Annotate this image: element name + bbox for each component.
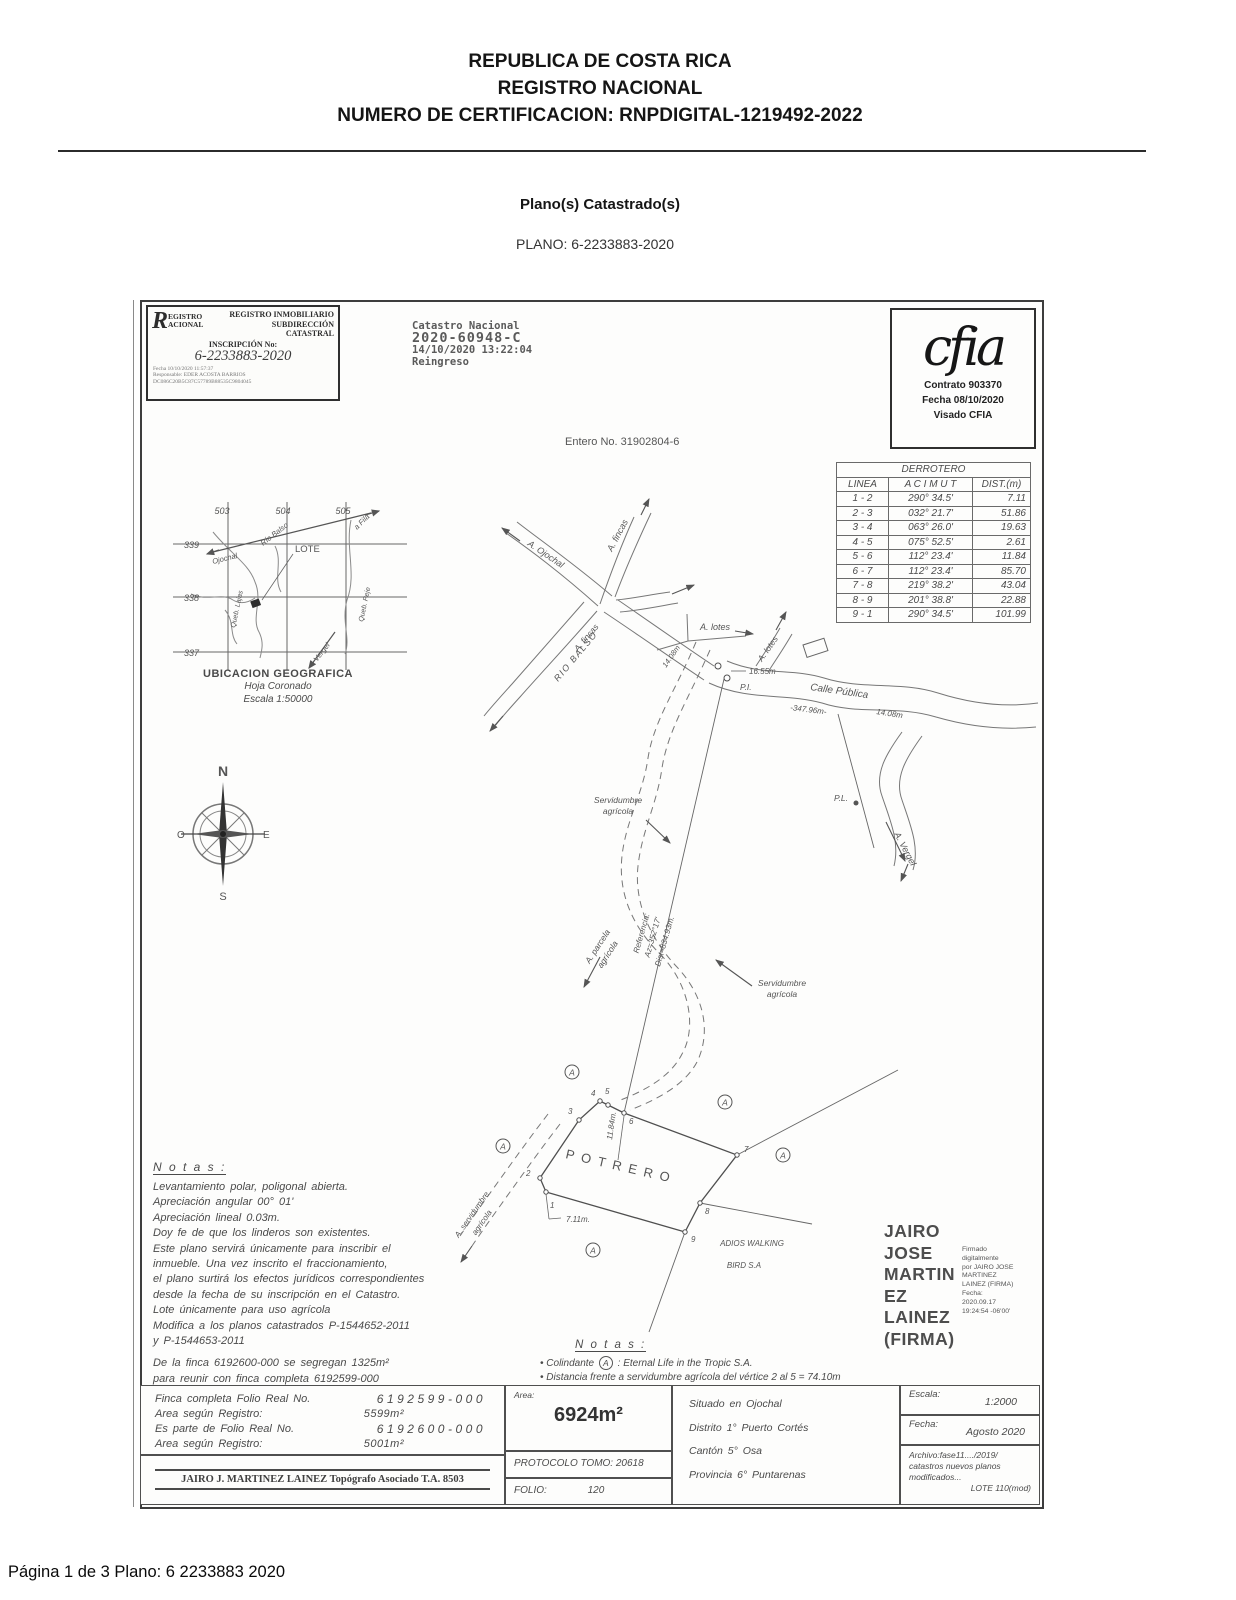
distancia-note: • Distancia frente a servidumbre agrícol…: [540, 1371, 1010, 1385]
surveyor-box: JAIRO J. MARTINEZ LAINEZ Topógrafo Asoci…: [140, 1455, 505, 1505]
sig-detail: Firmado: [962, 1246, 1036, 1255]
folio-box: FOLIO: 120: [505, 1478, 672, 1505]
cell: 2 - 3: [837, 506, 889, 521]
cell: 219° 38.2': [889, 579, 973, 594]
sig-line: MARTIN: [884, 1264, 955, 1286]
archivo-line: catastros nuevos planos: [909, 1461, 1035, 1472]
cell: 112° 23.4': [889, 550, 973, 565]
cfia-contrato: Contrato 903370: [892, 378, 1034, 393]
derrotero-col-linea: LINEA: [837, 477, 889, 492]
colindante-notes: N o t a s : • Colindante A : Eternal Lif…: [540, 1335, 1010, 1385]
cell: 4 - 5: [837, 535, 889, 550]
note-line: Doy fe de que los linderos son existente…: [153, 1226, 493, 1241]
note-line: desde la fecha de su inscripción en el C…: [153, 1288, 493, 1303]
cell: 7.11: [973, 492, 1031, 507]
note-line: Lote únicamente para uso agrícola: [153, 1303, 493, 1318]
cell: 2.61: [973, 535, 1031, 550]
cell: 7 - 8: [837, 579, 889, 594]
sig-detail: digitalmente: [962, 1255, 1036, 1264]
sig-detail: 19:24:54 -06'00': [962, 1308, 1036, 1317]
escala-label: Escala 1:50000: [178, 693, 378, 706]
cfia-logo: cfia: [892, 318, 1034, 378]
cfia-stamp: cfia Contrato 903370 Fecha 08/10/2020 Vi…: [890, 308, 1036, 449]
derrotero-row: 1 - 2290° 34.5'7.11: [837, 492, 1031, 507]
header-country: REPUBLICA DE COSTA RICA: [0, 48, 1200, 75]
archivo-line: Archivo:fase11..../2019/: [909, 1450, 1035, 1461]
folio-label: FOLIO:: [514, 1485, 547, 1496]
header-divider: [58, 150, 1146, 152]
cfia-visado: Visado CFIA: [892, 408, 1034, 423]
area-registro2-value: 5001m²: [364, 1437, 404, 1452]
note-line: y P-1544653-2011: [153, 1334, 493, 1349]
note-line: De la finca 6192600-000 se segregan 1325…: [153, 1356, 493, 1371]
folio-value: 120: [588, 1485, 605, 1496]
escala-value: 1:2000: [985, 1396, 1017, 1414]
sig-detail: Fecha:: [962, 1290, 1036, 1299]
colindante-a-icon: A: [599, 1356, 613, 1370]
hoja-label: Hoja Coronado: [178, 680, 378, 693]
derrotero-row: 9 - 1290° 34.5'101.99: [837, 608, 1031, 623]
section-title: Plano(s) Catastrado(s): [0, 196, 1200, 213]
derrotero-row: 4 - 5075° 52.5'2.61: [837, 535, 1031, 550]
cell: 290° 34.5': [889, 608, 973, 623]
stamp-code: DC086C20B5C87C57789B88535C9804045: [153, 379, 338, 386]
colindante-pre: • Colindante: [540, 1358, 594, 1369]
escala-box: Escala: 1:2000: [900, 1385, 1040, 1415]
derrotero-row: 2 - 3032° 21.7'51.86: [837, 506, 1031, 521]
provincia-line: Provincia 6° Puntarenas: [689, 1469, 899, 1481]
derrotero-row: 3 - 4063° 26.0'19.63: [837, 521, 1031, 536]
note-line: Este plano servirá únicamente para inscr…: [153, 1242, 493, 1257]
logo-r: R: [152, 310, 168, 332]
location-map-caption: UBICACION GEOGRAFICA Hoja Coronado Escal…: [178, 668, 378, 706]
note-line: Apreciación lineal 0.03m.: [153, 1211, 493, 1226]
archivo-lote-line: LOTE 110(mod): [909, 1483, 1035, 1494]
derrotero-col-dist: DIST.(m): [973, 477, 1031, 492]
fecha-label: Fecha:: [901, 1416, 938, 1444]
area-box: Area: 6924m²: [505, 1385, 672, 1451]
inscripcion-value: 6-2233883-2020: [148, 349, 338, 364]
entero-number: Entero No. 31902804-6: [565, 436, 679, 448]
fecha-value: Agosto 2020: [966, 1426, 1025, 1444]
notes-center-title: N o t a s :: [575, 1339, 646, 1352]
note-line: Apreciación angular 00° 01': [153, 1195, 493, 1210]
area-value: 6924m²: [506, 1404, 671, 1427]
cell: 51.86: [973, 506, 1031, 521]
cell: 19.63: [973, 521, 1031, 536]
area-label: Area:: [506, 1386, 671, 1400]
notes-block: N o t a s : Levantamiento polar, poligon…: [153, 1158, 493, 1387]
cell: 85.70: [973, 564, 1031, 579]
cell: 032° 21.7': [889, 506, 973, 521]
certification-header: REPUBLICA DE COSTA RICA REGISTRO NACIONA…: [0, 48, 1200, 129]
sig-line: JAIRO: [884, 1221, 955, 1243]
cell: 43.04: [973, 579, 1031, 594]
stamp-title1: REGISTRO INMOBILIARIO: [229, 310, 334, 320]
stamp-title3: CATASTRAL: [229, 329, 334, 339]
archivo-box: Archivo:fase11..../2019/ catastros nuevo…: [900, 1445, 1040, 1505]
derrotero-col-acimut: A C I M U T: [889, 477, 973, 492]
catastro-status: Reingreso: [412, 356, 532, 368]
archivo-line: modificados...: [909, 1472, 1035, 1483]
sig-line: LAINEZ: [884, 1307, 955, 1329]
note-line: el plano surtirá los efectos jurídicos c…: [153, 1272, 493, 1287]
cell: 290° 34.5': [889, 492, 973, 507]
note-line: Modifica a los planos catastrados P-1544…: [153, 1319, 493, 1334]
note-line: inmueble. Una vez inscrito el fraccionam…: [153, 1257, 493, 1272]
plano-number: PLANO: 6-2233883-2020: [0, 236, 1190, 252]
canton-line: Cantón 5° Osa: [689, 1445, 899, 1457]
colindante-note: • Colindante A : Eternal Life in the Tro…: [540, 1356, 1010, 1371]
sheet-outer-line: [133, 300, 134, 1507]
catastro-datetime: 14/10/2020 13:22:04: [412, 344, 532, 356]
finca-value: 6192599-000: [377, 1392, 486, 1407]
registro-nacional-logo: R EGISTRO ACIONAL: [152, 310, 203, 339]
page-footer: Página 1 de 3 Plano: 6 2233883 2020: [8, 1563, 285, 1582]
cell: 8 - 9: [837, 593, 889, 608]
sig-line: JOSE: [884, 1243, 955, 1265]
surveyor-name: JAIRO J. MARTINEZ LAINEZ Topógrafo Asoci…: [155, 1469, 490, 1490]
cell: 5 - 6: [837, 550, 889, 565]
sig-detail: LAINEZ (FIRMA): [962, 1281, 1036, 1290]
note-line: Levantamiento polar, poligonal abierta.: [153, 1180, 493, 1195]
cell: 22.88: [973, 593, 1031, 608]
cell: 6 - 7: [837, 564, 889, 579]
derrotero-title: DERROTERO: [837, 463, 1031, 478]
location-box: Situado en Ojochal Distrito 1° Puerto Co…: [672, 1385, 900, 1505]
colindante-post: : Eternal Life in the Tropic S.A.: [618, 1358, 753, 1369]
document-page: REPUBLICA DE COSTA RICA REGISTRO NACIONA…: [0, 0, 1236, 1600]
area-registro-value: 5599m²: [364, 1407, 404, 1422]
ubicacion-title: UBICACION GEOGRAFICA: [178, 668, 378, 680]
cell: 101.99: [973, 608, 1031, 623]
cell: 075° 52.5': [889, 535, 973, 550]
folio-parte-value: 6192600-000: [377, 1422, 486, 1437]
notes-title: N o t a s :: [153, 1160, 226, 1175]
registry-stamp: R EGISTRO ACIONAL REGISTRO INMOBILIARIO …: [146, 305, 340, 401]
cfia-fecha: Fecha 08/10/2020: [892, 393, 1034, 408]
catastro-number: 2020-60948-C: [412, 332, 532, 344]
situado-line: Situado en Ojochal: [689, 1398, 899, 1410]
cell: 3 - 4: [837, 521, 889, 536]
fecha-box: Fecha: Agosto 2020: [900, 1415, 1040, 1445]
sig-line: EZ: [884, 1286, 955, 1308]
finca-info-box: Finca completa Folio Real No.6192599-000…: [140, 1385, 505, 1455]
cell: 9 - 1: [837, 608, 889, 623]
folio-parte-label: Es parte de Folio Real No.: [155, 1422, 294, 1437]
cell: 1 - 2: [837, 492, 889, 507]
cell: 11.84: [973, 550, 1031, 565]
header-cert-number: NUMERO DE CERTIFICACION: RNPDIGITAL-1219…: [0, 102, 1200, 129]
finca-label: Finca completa Folio Real No.: [155, 1392, 310, 1407]
logo-line2: ACIONAL: [168, 321, 203, 329]
cell: 201° 38.8': [889, 593, 973, 608]
distrito-line: Distrito 1° Puerto Cortés: [689, 1422, 899, 1434]
escala-label: Escala:: [901, 1386, 940, 1414]
stamp-title2: SUBDIRECCIÓN: [229, 320, 334, 330]
cell: 112° 23.4': [889, 564, 973, 579]
derrotero-row: 7 - 8219° 38.2'43.04: [837, 579, 1031, 594]
area-registro-label: Area según Registro:: [155, 1407, 262, 1422]
derrotero-row: 6 - 7112° 23.4'85.70: [837, 564, 1031, 579]
sig-detail: 2020.09.17: [962, 1299, 1036, 1308]
digital-signature-details: Firmado digitalmente por JAIRO JOSE MART…: [962, 1246, 1036, 1316]
protocolo-box: PROTOCOLO TOMO: 20618: [505, 1451, 672, 1478]
sig-detail: MARTINEZ: [962, 1272, 1036, 1281]
sig-detail: por JAIRO JOSE: [962, 1264, 1036, 1273]
header-registry: REGISTRO NACIONAL: [0, 75, 1200, 102]
catastro-block: Catastro Nacional 2020-60948-C 14/10/202…: [412, 320, 532, 368]
derrotero-table: DERROTERO LINEA A C I M U T DIST.(m) 1 -…: [836, 462, 1031, 623]
derrotero-row: 8 - 9201° 38.8'22.88: [837, 593, 1031, 608]
area-registro2-label: Area según Registro:: [155, 1437, 262, 1452]
derrotero-row: 5 - 6112° 23.4'11.84: [837, 550, 1031, 565]
digital-signature-name: JAIRO JOSE MARTIN EZ LAINEZ (FIRMA): [884, 1221, 955, 1350]
cell: 063° 26.0': [889, 521, 973, 536]
